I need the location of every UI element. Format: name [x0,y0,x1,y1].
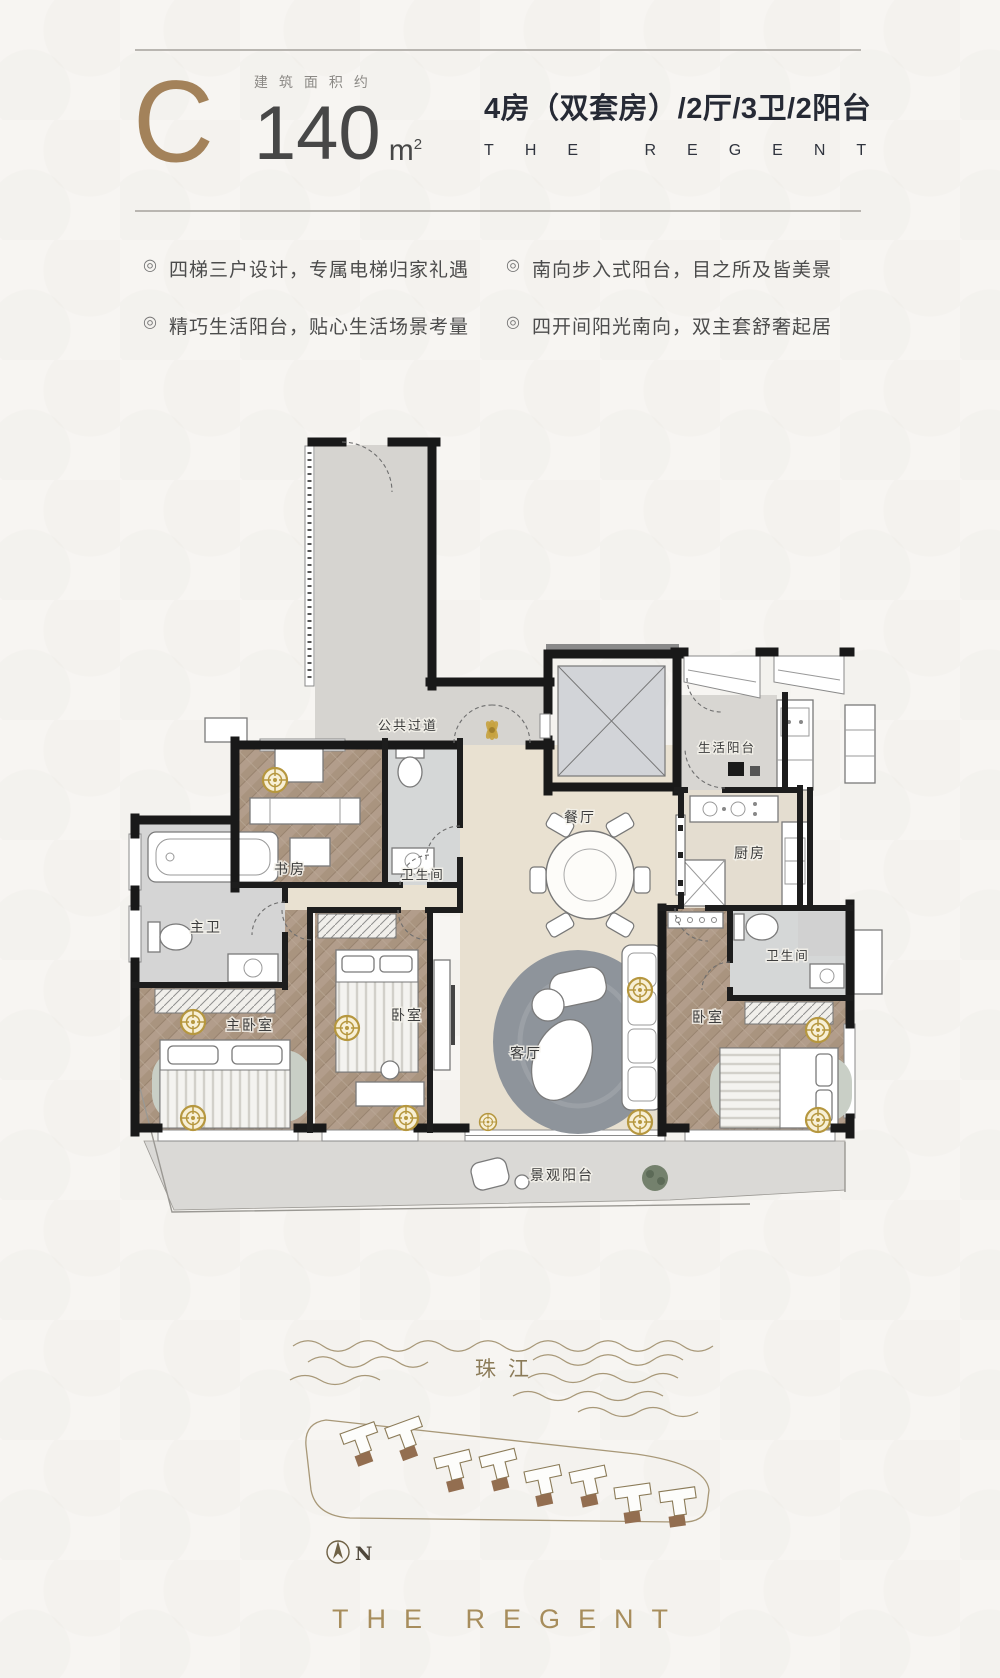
room-label-dining: 餐厅 [564,810,596,826]
brand-name-spaced: THE REGENT [484,142,897,160]
feature-item: ◎ 四开间阳光南向，双主套舒奢起居 [506,312,832,339]
room-label-bedroom-3: 卧室 [692,1009,724,1026]
room-label-bath-3: 卫生间 [766,948,810,963]
kitchen-slider-track [676,815,685,895]
header-divider [135,210,861,212]
area-label: 建筑面积约 [254,72,422,92]
feature-text: 南向步入式阳台，目之所及皆美景 [532,255,832,282]
area-value: 140 m2 [254,96,422,172]
room-label-study: 书房 [274,862,306,878]
unit-type-letter: C [133,64,214,180]
room-label-master-bath: 主卫 [190,920,222,936]
bullseye-bullet-icon: ◎ [506,255,521,277]
room-label-bath-2: 卫生间 [401,867,445,882]
room-label-living: 客厅 [510,1045,542,1062]
bullseye-bullet-icon: ◎ [506,312,521,334]
feature-text: 四开间阳光南向，双主套舒奢起居 [532,312,832,339]
header: C 建筑面积约 140 m2 4房（双套房）/2厅/3卫/2阳台 THE REG… [133,66,863,178]
feature-text: 四梯三户设计，专属电梯归家礼遇 [169,255,469,282]
room-label-public-corridor: 公共过道 [378,719,438,734]
footer-brand: THE REGENT [0,1604,1000,1635]
site-map: 珠江 N [278,1298,728,1588]
bullseye-bullet-icon: ◎ [143,255,158,277]
area-block: 建筑面积约 140 m2 [254,72,422,172]
room-label-kitchen: 厨房 [734,846,766,862]
north-arrow-icon [327,1541,349,1563]
north-label: N [355,1543,372,1565]
room-label-bedroom-2: 卧室 [391,1007,423,1024]
elevator-door [540,714,550,738]
building-clusters [340,1407,700,1535]
feature-item: ◎ 精巧生活阳台，贴心生活场景考量 [143,312,469,339]
room-label-master-bedroom: 主卧室 [226,1017,274,1034]
river-label: 珠江 [475,1357,541,1381]
feature-item: ◎ 四梯三户设计，专属电梯归家礼遇 [143,255,469,282]
area-unit: m2 [389,136,422,166]
bullseye-bullet-icon: ◎ [143,312,158,334]
feature-item: ◎ 南向步入式阳台，目之所及皆美景 [506,255,832,282]
feature-text: 精巧生活阳台，贴心生活场景考量 [169,312,469,339]
room-label-view-balcony: 景观阳台 [530,1168,594,1184]
room-label-service-balcony: 生活阳台 [698,740,756,755]
area-number: 140 [254,96,381,172]
top-divider [135,49,861,51]
brochure-page: C 建筑面积约 140 m2 4房（双套房）/2厅/3卫/2阳台 THE REG… [0,0,1000,1678]
floor-plan: 公共过道 生活阳台 厨房 餐厅 卫生间 书房 主卫 主卧室 卧室 客厅 卧室 卫… [110,430,890,1230]
hall-floor [285,885,460,910]
layout-title: 4房（双套房）/2厅/3卫/2阳台 [484,85,897,127]
title-block: 4房（双套房）/2厅/3卫/2阳台 THE REGENT [484,85,897,160]
